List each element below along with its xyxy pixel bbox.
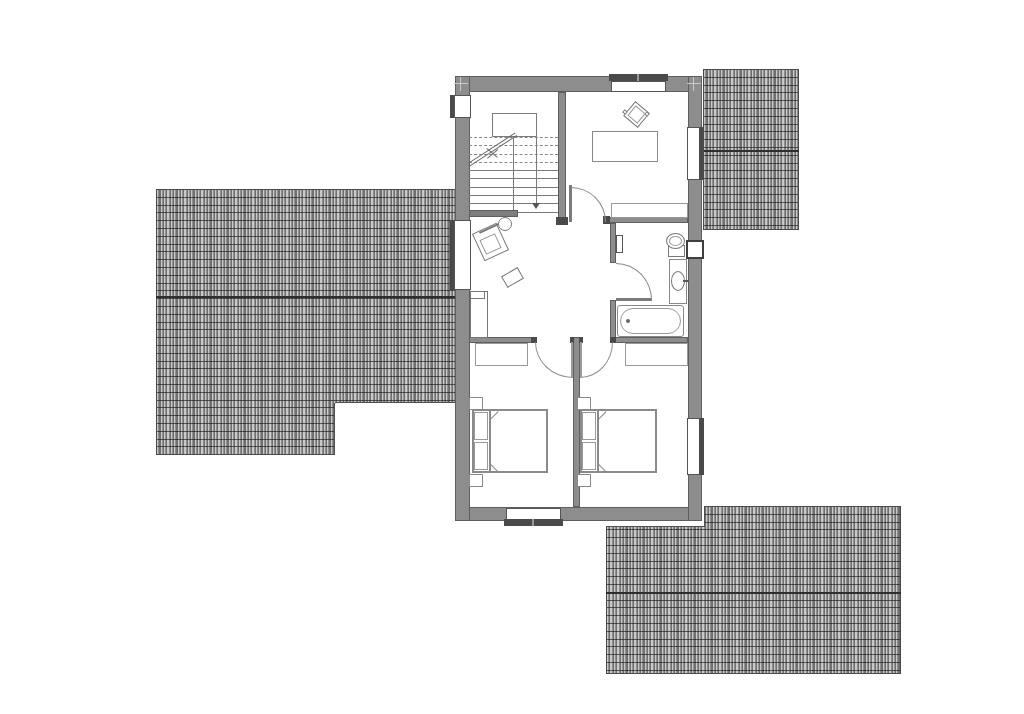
window-left-hall	[454, 220, 471, 290]
bathtub-faucet	[626, 319, 630, 323]
roof-left	[156, 189, 456, 455]
stair-flight-divider	[513, 137, 514, 212]
bedroom-tr-desk	[592, 131, 658, 162]
window-left-upper	[454, 95, 471, 118]
bed-right-pillow-2	[582, 442, 596, 470]
window-top	[611, 81, 666, 92]
bed-left-pillow-1	[474, 412, 488, 440]
exterior-wall-bottom	[455, 507, 702, 521]
bedroom-br-shelf	[625, 343, 688, 366]
survey-cross-2-v	[693, 77, 694, 91]
sink-tap	[683, 280, 689, 282]
door-leaf-bedroom-left	[571, 342, 573, 378]
bed-right-nightstand-2	[577, 474, 591, 487]
roof-bottom-right-ridge-line	[606, 592, 901, 594]
toilet-bowl-inner	[669, 236, 682, 246]
hall-side-table	[498, 217, 512, 231]
roof-br-step-edge-v	[704, 506, 705, 527]
roof-top-right	[703, 69, 799, 230]
bed-right-nightstand-1	[577, 397, 591, 410]
window-bottom-mullion-tick	[532, 519, 534, 526]
roof-br-step-edge-h	[606, 526, 705, 527]
survey-cross-1-h	[454, 83, 468, 84]
bedroom-bl-shelf	[475, 343, 528, 366]
survey-cross-1-v	[460, 77, 461, 91]
floor-plan-canvas	[0, 0, 1024, 714]
bed-right-pillow-1	[582, 412, 596, 440]
roof-left-step-edge-v	[334, 403, 335, 455]
roof-left-step-edge-h	[335, 402, 456, 403]
exterior-wall-left	[455, 76, 470, 521]
bed-left-nightstand-1	[469, 397, 483, 410]
chimney-block	[686, 240, 704, 259]
door-leaf-bedroom-right	[580, 342, 582, 378]
stair-walk-arrow	[532, 203, 540, 209]
hall-cabinet-top-section	[470, 291, 485, 299]
jamb-stairwell	[556, 217, 568, 225]
bedroom-tr-shelf	[611, 203, 688, 218]
bathroom-door-side-block	[616, 235, 623, 253]
roof-top-right-ridge-line	[703, 150, 799, 152]
stair-bottom-guard-wall	[469, 210, 518, 217]
window-top-mullion-tick	[637, 74, 639, 81]
survey-cross-2-h	[687, 83, 701, 84]
window-right-upper-frame-bar	[699, 127, 704, 180]
bed-left-pillow-2	[474, 442, 488, 470]
stair-walk-line	[536, 137, 537, 203]
roof-left-ridge-line	[156, 296, 456, 298]
interior-wall-stairwell	[558, 92, 566, 218]
roof-bottom-right	[606, 506, 901, 674]
window-right-lower-frame-bar	[699, 418, 704, 475]
bed-left-nightstand-2	[469, 474, 483, 487]
